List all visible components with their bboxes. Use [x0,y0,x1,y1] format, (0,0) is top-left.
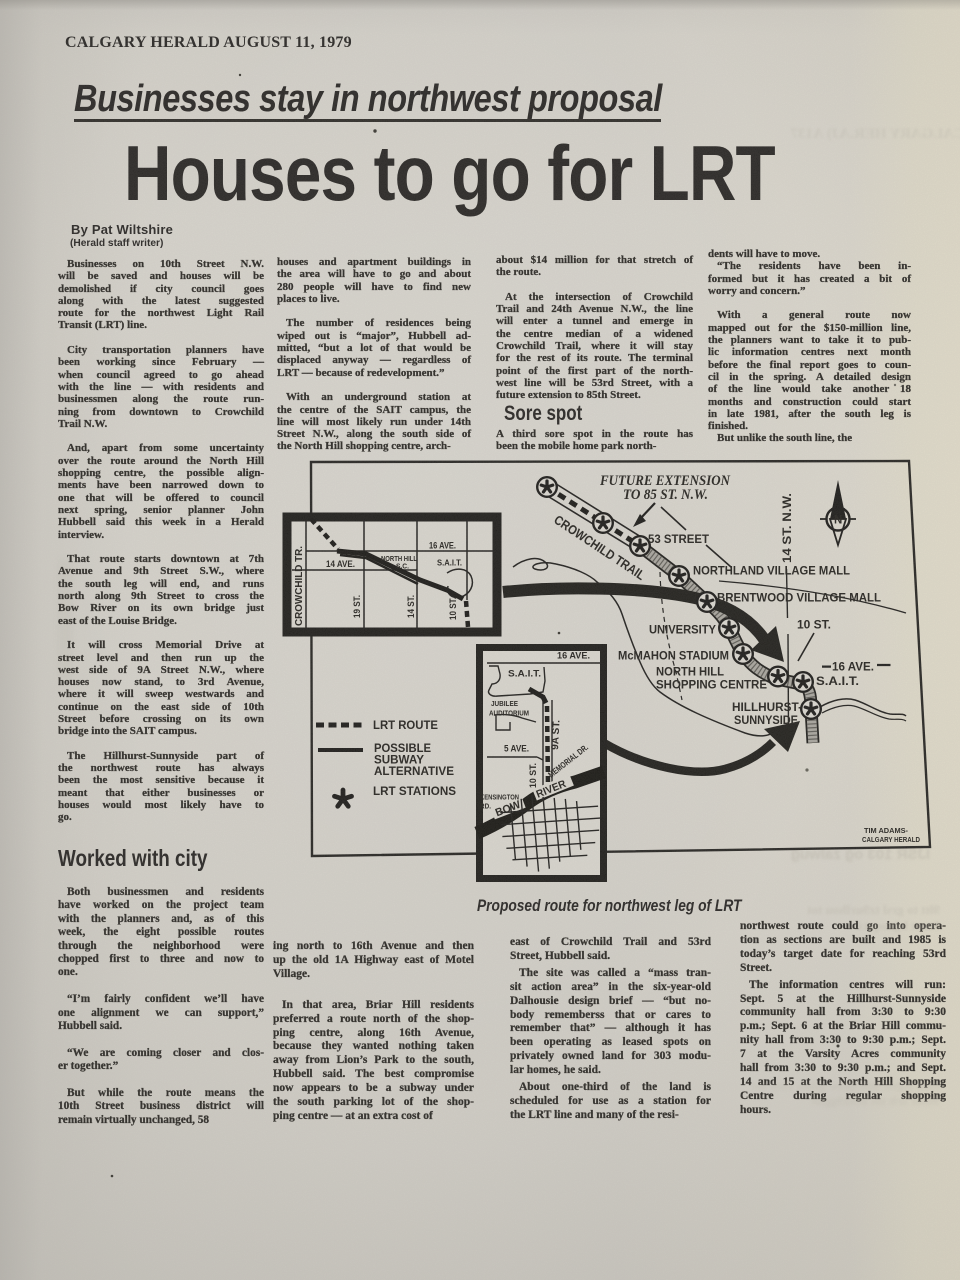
svg-text:TO 85 ST. N.W.: TO 85 ST. N.W. [623,487,708,503]
svg-text:HILLHURST-: HILLHURST- [732,700,802,714]
svg-text:SHOPPING CENTRE: SHOPPING CENTRE [656,677,767,691]
svg-text:BRENTWOOD VILLAGE MALL: BRENTWOOD VILLAGE MALL [717,591,881,605]
svg-text:KENSINGTON: KENSINGTON [480,793,519,802]
svg-text:CROWCHILD TR.: CROWCHILD TR. [294,546,305,626]
svg-text:ALTERNATIVE: ALTERNATIVE [374,764,454,778]
svg-text:10 ST.: 10 ST. [448,597,459,620]
svg-text:16 AVE.: 16 AVE. [557,651,590,662]
svg-text:14 AVE.: 14 AVE. [326,559,355,570]
svg-text:9A ST.: 9A ST. [550,719,563,750]
svg-text:AUDITORIUM: AUDITORIUM [489,709,529,718]
svg-text:5 AVE.: 5 AVE. [504,744,529,755]
svg-text:10 ST.: 10 ST. [797,618,831,632]
svg-text:NORTH HILL: NORTH HILL [381,556,418,563]
svg-text:N: N [834,515,842,527]
svg-text:S.C.: S.C. [396,564,409,571]
svg-text:14 ST.: 14 ST. [406,595,417,618]
svg-text:CALGARY HERALD: CALGARY HERALD [862,835,920,844]
svg-text:19 ST.: 19 ST. [352,595,363,618]
svg-text:53 STREET: 53 STREET [648,532,710,546]
svg-text:NORTHLAND VILLAGE MALL: NORTHLAND VILLAGE MALL [693,564,850,578]
svg-text:16 AVE.: 16 AVE. [832,660,874,674]
svg-text:SUNNYSIDE: SUNNYSIDE [734,713,798,727]
svg-text:S.A.I.T.: S.A.I.T. [437,559,462,568]
svg-text:S.A.I.T.: S.A.I.T. [508,669,541,679]
svg-text:LRT ROUTE: LRT ROUTE [373,718,438,732]
svg-text:UNIVERSITY: UNIVERSITY [649,623,716,637]
svg-text:S.A.I.T.: S.A.I.T. [816,674,859,688]
svg-text:TIM ADAMS-: TIM ADAMS- [864,826,908,835]
svg-text:16 AVE.: 16 AVE. [429,541,456,552]
svg-text:McMAHON STADIUM: McMAHON STADIUM [618,648,729,662]
svg-text:JUBILEE: JUBILEE [491,699,518,708]
svg-text:RD.: RD. [480,802,491,811]
svg-text:10 ST.: 10 ST. [528,763,539,788]
svg-text:14 ST. N.W.: 14 ST. N.W. [780,493,794,563]
svg-text:LRT STATIONS: LRT STATIONS [373,784,456,798]
